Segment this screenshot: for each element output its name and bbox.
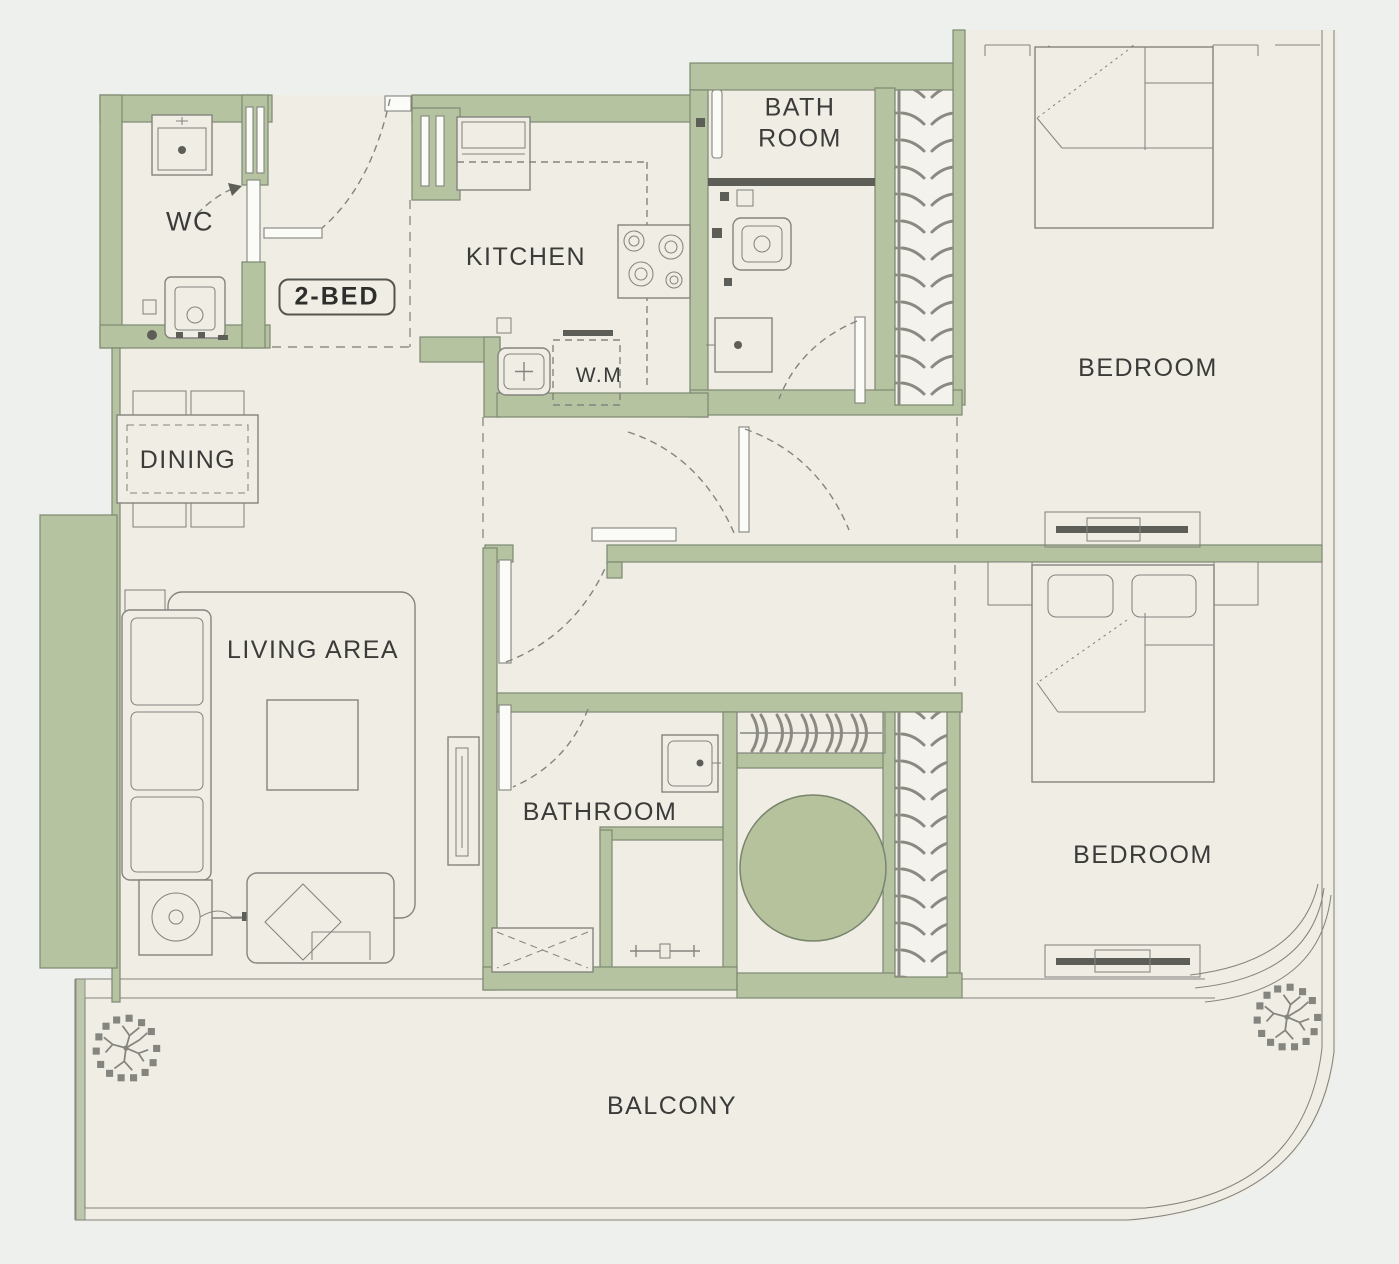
vent-shaft-bottom (895, 712, 947, 977)
room-label-living: LIVING AREA (227, 635, 399, 666)
floor-plan-drawing (0, 0, 1399, 1264)
room-label-bathroom-bottom: BATHROOM (523, 797, 678, 828)
room-label-bedroom-top: BEDROOM (1078, 353, 1218, 384)
room-label-bathroom-top: BATHROOM (758, 93, 842, 154)
bath-line2: ROOM (758, 124, 842, 152)
bedroom-top-furniture (1035, 47, 1213, 228)
room-label-balcony: BALCONY (607, 1091, 737, 1122)
room-label-wc: WC (166, 206, 214, 239)
vent-shaft-top (895, 90, 953, 405)
room-label-kitchen: KITCHEN (466, 242, 586, 273)
circular-feature (740, 795, 886, 941)
unit-type-badge: 2-BED (278, 279, 395, 316)
floor-plan: WC 2-BED KITCHEN W.M BATHROOM BEDROOM DI… (0, 0, 1399, 1264)
label-washing-machine: W.M (576, 363, 623, 389)
bath-line1: BATH (765, 94, 836, 122)
room-label-bedroom-bottom: BEDROOM (1073, 840, 1213, 871)
room-label-dining: DINING (140, 445, 237, 476)
